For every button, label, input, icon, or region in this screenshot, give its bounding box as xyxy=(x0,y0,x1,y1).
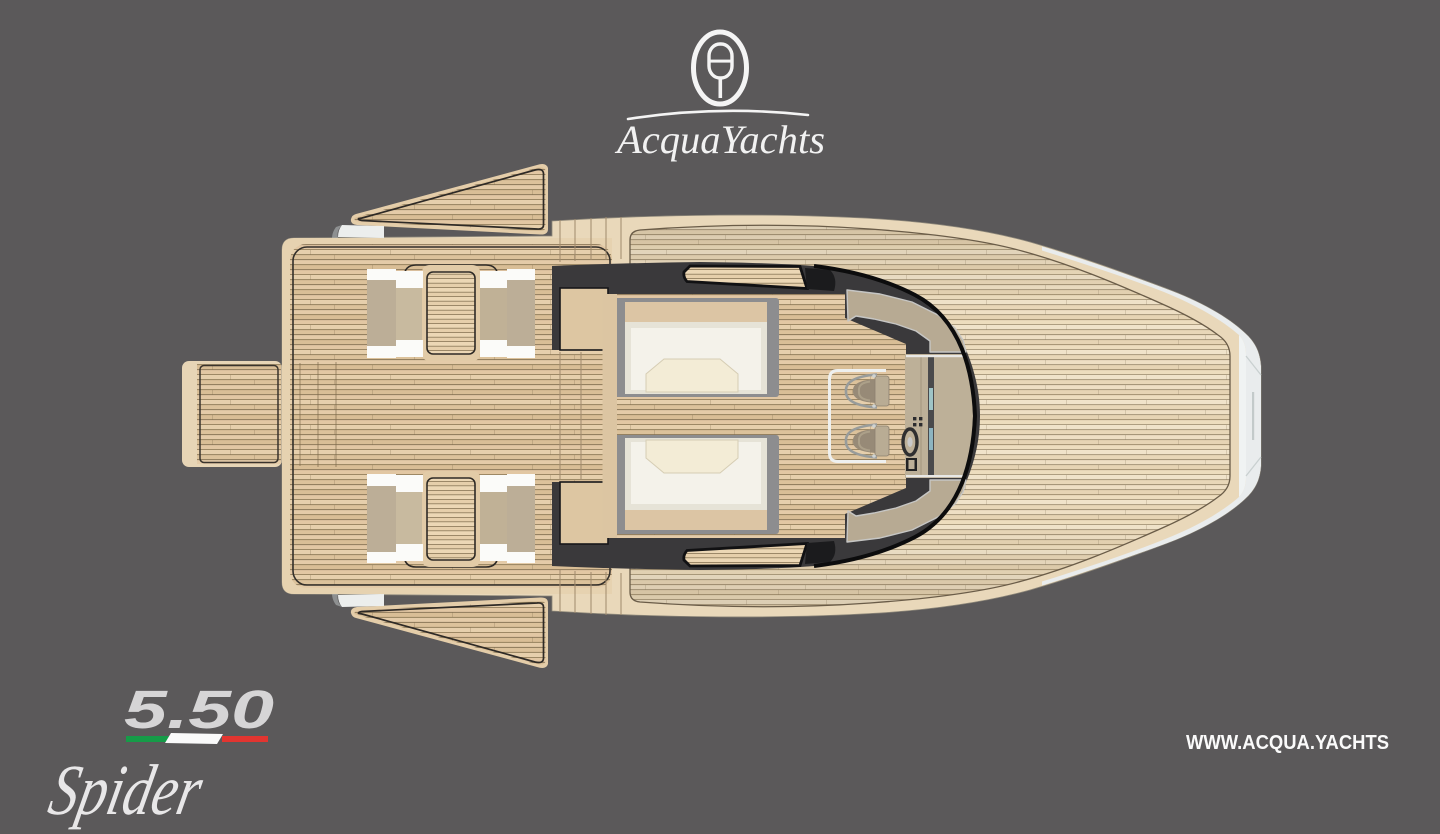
svg-text:Spider: Spider xyxy=(43,750,211,830)
svg-text:AcquaYachts: AcquaYachts xyxy=(614,117,825,162)
svg-text:WWW.ACQUA.YACHTS: WWW.ACQUA.YACHTS xyxy=(1186,731,1389,754)
svg-text:5.50: 5.50 xyxy=(124,680,274,740)
